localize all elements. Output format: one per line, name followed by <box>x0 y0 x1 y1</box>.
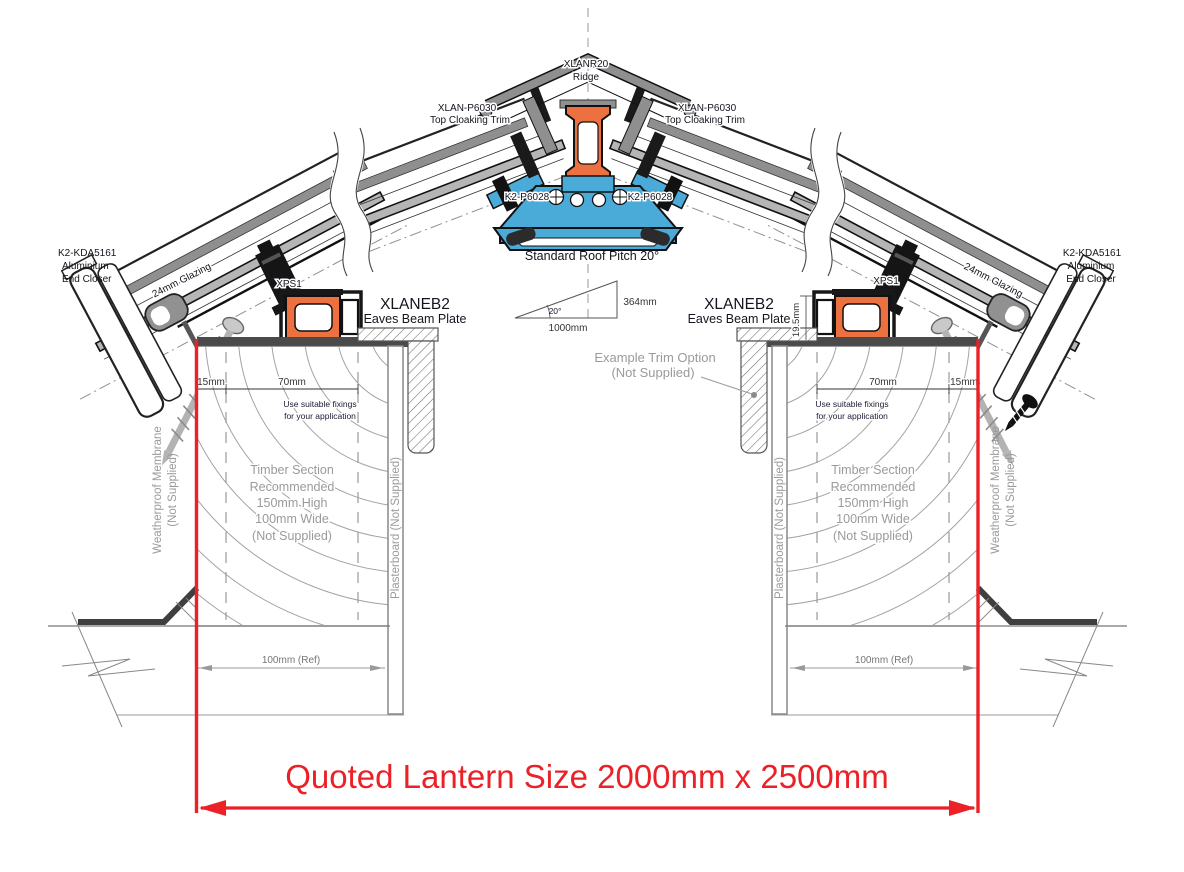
ridge-fixing-right: K2-P6028 <box>628 192 673 203</box>
pitch-angle: 20° <box>549 306 562 316</box>
svg-text:150mm High: 150mm High <box>257 496 328 510</box>
svg-text:Recommended: Recommended <box>831 480 916 494</box>
fixings-note-line1-right: Use suitable fixings <box>815 399 888 409</box>
svg-text:100mm Wide: 100mm Wide <box>255 512 329 526</box>
dim-70mm-left: 70mm <box>278 377 306 388</box>
eaves-beam-name-right: Eaves Beam Plate <box>688 312 791 326</box>
ridge-model-label: XLANR20 <box>564 59 609 70</box>
plasterboard-label-right: Plasterboard (Not Supplied) <box>774 457 786 599</box>
fixings-note-line1-left: Use suitable fixings <box>283 399 356 409</box>
timber-note-right: Timber Section Recommended 150mm High 10… <box>831 463 916 543</box>
roof-lantern-section-drawing: XLANR20 Ridge XLAN-P6030 Top Cloaking Tr… <box>0 0 1184 872</box>
ref-100mm-right: 100mm (Ref) <box>855 655 913 666</box>
cloaking-trim-model-right: XLAN-P6030 <box>678 103 737 114</box>
ridge-name-label: Ridge <box>573 72 600 83</box>
dim-15mm-left: 15mm <box>197 377 225 388</box>
cloaking-trim-name-right: Top Cloaking Trim <box>665 115 745 126</box>
plasterboard-label-left: Plasterboard (Not Supplied) <box>390 457 402 599</box>
end-closer-line2-right: Aluminium <box>1068 261 1115 272</box>
end-closer-line2-left: Aluminium <box>62 261 109 272</box>
trim-option-line2: (Not Supplied) <box>611 365 694 380</box>
ridge-fixing-left: K2-P6028 <box>505 192 550 203</box>
eaves-beam-model-right: XLANEB2 <box>704 296 774 313</box>
svg-text:Recommended: Recommended <box>250 480 335 494</box>
pitch-run: 1000mm <box>549 323 588 334</box>
xps1-label-right: XPS1 <box>873 276 899 287</box>
dim-19-5mm: 19.5mm <box>791 303 802 337</box>
end-closer-line3-right: End Closer <box>1066 274 1116 285</box>
quoted-size-text: Quoted Lantern Size 2000mm x 2500mm <box>285 758 889 795</box>
pitch-note: Standard Roof Pitch 20° <box>525 249 659 263</box>
membrane-label-left-2: (Not Supplied) <box>167 453 179 527</box>
technical-drawing-page: XLANR20 Ridge XLAN-P6030 Top Cloaking Tr… <box>0 0 1184 872</box>
svg-text:100mm Wide: 100mm Wide <box>836 512 910 526</box>
membrane-label-right-2: (Not Supplied) <box>1005 453 1017 527</box>
svg-text:Timber Section: Timber Section <box>831 463 915 477</box>
cloaking-trim-name-left: Top Cloaking Trim <box>430 115 510 126</box>
svg-text:Timber Section: Timber Section <box>250 463 334 477</box>
svg-text:(Not Supplied): (Not Supplied) <box>833 529 913 543</box>
membrane-label-left-1: Weatherproof Membrane <box>152 426 164 554</box>
svg-text:150mm High: 150mm High <box>838 496 909 510</box>
fixings-note-line2-left: for your application <box>284 411 356 421</box>
end-closer-model-right: K2-KDA5161 <box>1063 248 1122 259</box>
dim-15mm-right: 15mm <box>950 377 978 388</box>
timber-note-left: Timber Section Recommended 150mm High 10… <box>250 463 335 543</box>
end-closer-line3-left: End Closer <box>62 274 112 285</box>
pitch-rise: 364mm <box>623 297 656 308</box>
svg-text:(Not Supplied): (Not Supplied) <box>252 529 332 543</box>
dim-70mm-right: 70mm <box>869 377 897 388</box>
xps1-label-left: XPS1 <box>276 279 302 290</box>
eaves-beam-model-left: XLANEB2 <box>380 296 450 313</box>
ref-100mm-left: 100mm (Ref) <box>262 655 320 666</box>
membrane-label-right-1: Weatherproof Membrane <box>990 426 1002 554</box>
end-closer-model-left: K2-KDA5161 <box>58 248 117 259</box>
trim-option-line1: Example Trim Option <box>594 350 715 365</box>
fixings-note-line2-right: for your application <box>816 411 888 421</box>
cloaking-trim-model-left: XLAN-P6030 <box>438 103 497 114</box>
eaves-beam-name-left: Eaves Beam Plate <box>364 312 467 326</box>
